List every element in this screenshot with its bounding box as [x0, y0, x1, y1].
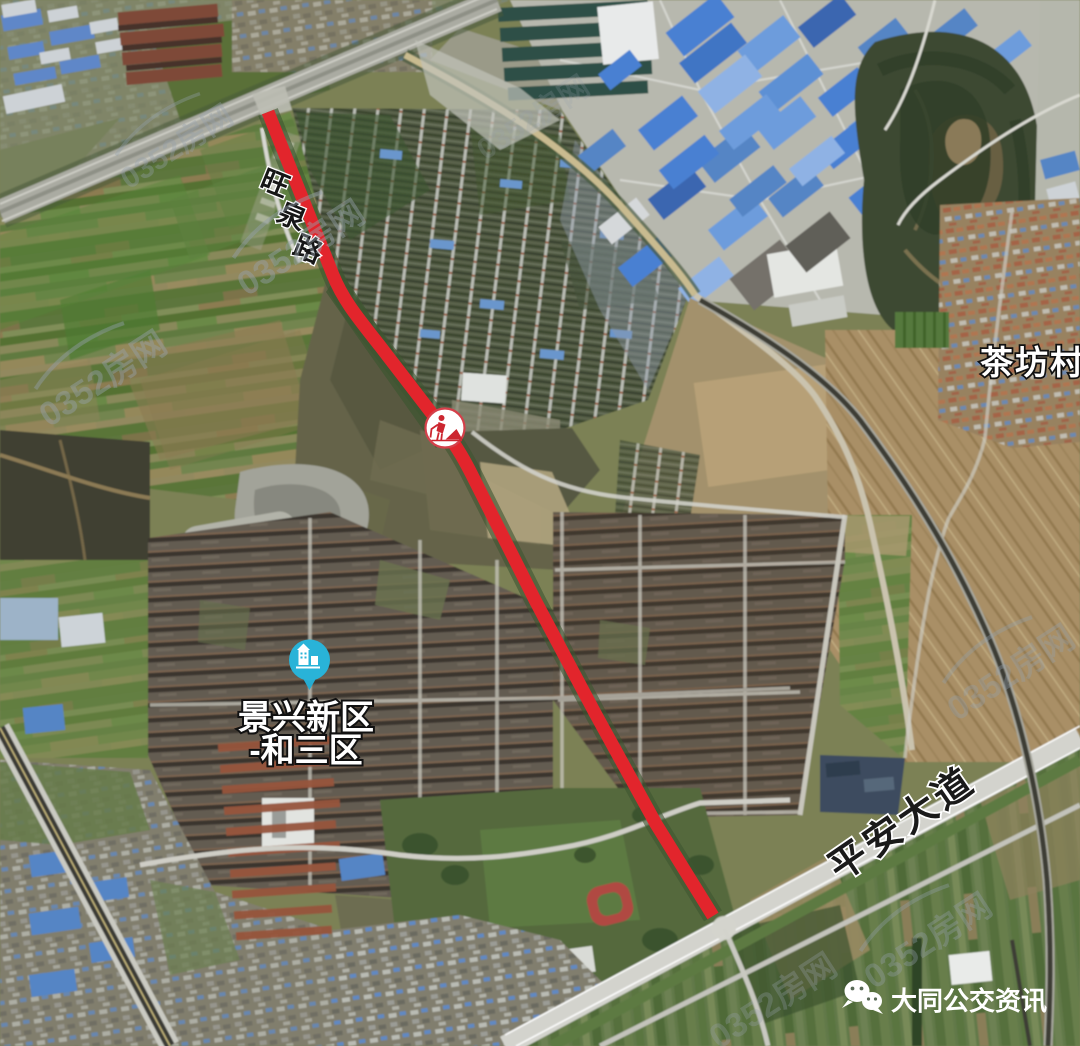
- svg-text:大同公交资讯: 大同公交资讯: [891, 986, 1047, 1016]
- svg-text:茶坊村: 茶坊村: [980, 344, 1080, 381]
- svg-text:-和三区: -和三区: [249, 732, 362, 770]
